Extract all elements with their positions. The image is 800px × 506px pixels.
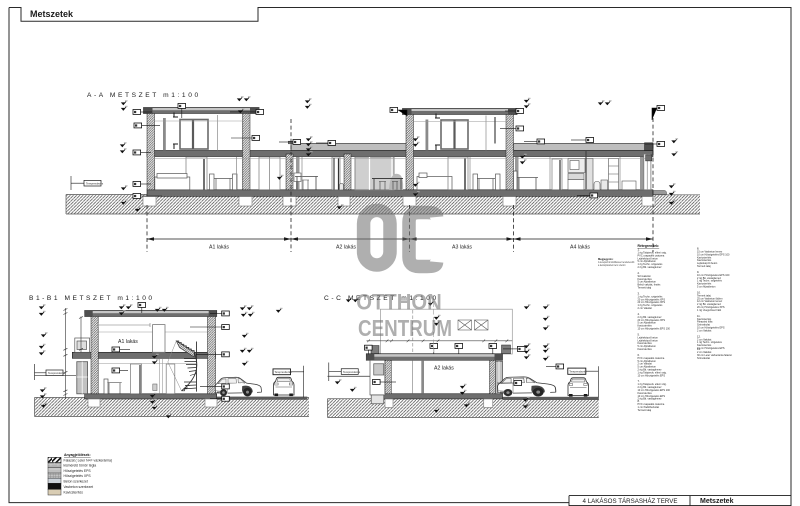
svg-text:A3 lakás: A3 lakás	[452, 245, 472, 251]
svg-text:Termett talaj: Termett talaj	[638, 409, 652, 412]
svg-text:Tereprendezés: Tereprendezés	[569, 370, 587, 374]
svg-text:A4 lakás: A4 lakás	[570, 245, 590, 251]
svg-text:Vasbeton szerkezet: Vasbeton szerkezet	[64, 485, 94, 489]
svg-text:a kertépítészeti terv szerint: a kertépítészeti terv szerint	[598, 264, 626, 267]
svg-text:Megjegyzés:: Megjegyzés:	[598, 257, 614, 261]
svg-text:B1-B1 METSZET m1:100: B1-B1 METSZET m1:100	[29, 295, 155, 302]
svg-text:Tereprendezés: Tereprendezés	[343, 370, 361, 374]
svg-text:Színvakolat: Színvakolat	[697, 357, 710, 360]
svg-text:A2 lakás: A2 lakás	[434, 366, 454, 372]
svg-text:A1 lakás: A1 lakás	[209, 245, 229, 251]
svg-text:Kavicsterítés: Kavicsterítés	[638, 348, 653, 351]
svg-text:Falazat ( Leier N+F vázkerámia: Falazat ( Leier N+F vázkerámia)	[64, 459, 113, 463]
svg-text:Metszetek: Metszetek	[700, 498, 734, 505]
svg-text:A-A METSZET m1:100: A-A METSZET m1:100	[87, 92, 201, 99]
svg-text:Metszetek: Metszetek	[30, 9, 74, 19]
svg-text:2 cm Vakolat: 2 cm Vakolat	[638, 307, 653, 310]
svg-text:Termett talaj: Termett talaj	[638, 287, 652, 290]
svg-text:Hőszigetelés EPS: Hőszigetelés EPS	[64, 469, 92, 473]
svg-text:Anyagjelölések:: Anyagjelölések:	[64, 453, 91, 457]
svg-text:Tereprendezés: Tereprendezés	[48, 371, 66, 375]
svg-text:A2 lakás: A2 lakás	[336, 245, 356, 251]
svg-text:2 rtg Bit. vastaglemez: 2 rtg Bit. vastaglemez	[638, 266, 663, 269]
svg-text:10 cm Hőszigetelés EPS: 10 cm Hőszigetelés EPS	[638, 374, 666, 377]
svg-text:Rétegrendek:: Rétegrendek:	[638, 244, 660, 248]
svg-text:2 cm Vakolat: 2 cm Vakolat	[697, 329, 712, 332]
svg-text:Tereprendezés: Tereprendezés	[275, 370, 293, 374]
svg-text:5 cm Aljzatbeton: 5 cm Aljzatbeton	[697, 286, 716, 289]
svg-text:10 cm Hőszigetelés EPS 100: 10 cm Hőszigetelés EPS 100	[638, 328, 671, 331]
svg-text:Beton szerkezet: Beton szerkezet	[64, 479, 88, 483]
svg-text:2 rtg Bit. vastaglemez: 2 rtg Bit. vastaglemez	[638, 398, 663, 401]
svg-text:Hőszigetelés XPS: Hőszigetelés XPS	[64, 474, 92, 478]
svg-text:kisméretű tömör tégla: kisméretű tömör tégla	[64, 464, 97, 468]
svg-text:10 cm Hőszigetelés EPS: 10 cm Hőszigetelés EPS	[697, 347, 725, 350]
svg-text:CENTRUM: CENTRUM	[358, 315, 452, 341]
svg-text:OTTHON: OTTHON	[356, 290, 442, 315]
svg-text:Kavicsterítés: Kavicsterítés	[64, 491, 84, 495]
svg-text:Termett talaj: Termett talaj	[697, 265, 711, 268]
svg-text:A terepszint feltöltéssel rend: A terepszint feltöltéssel rendezendő	[598, 261, 635, 264]
svg-text:A1 lakás: A1 lakás	[118, 339, 138, 345]
svg-text:4 LAKÁSOS TÁRSASHÁZ TERVE: 4 LAKÁSOS TÁRSASHÁZ TERVE	[583, 498, 678, 505]
svg-text:1 rtg Üvegszövet háló: 1 rtg Üvegszövet háló	[697, 309, 722, 312]
svg-text:Tereprendezés: Tereprendezés	[86, 181, 104, 185]
